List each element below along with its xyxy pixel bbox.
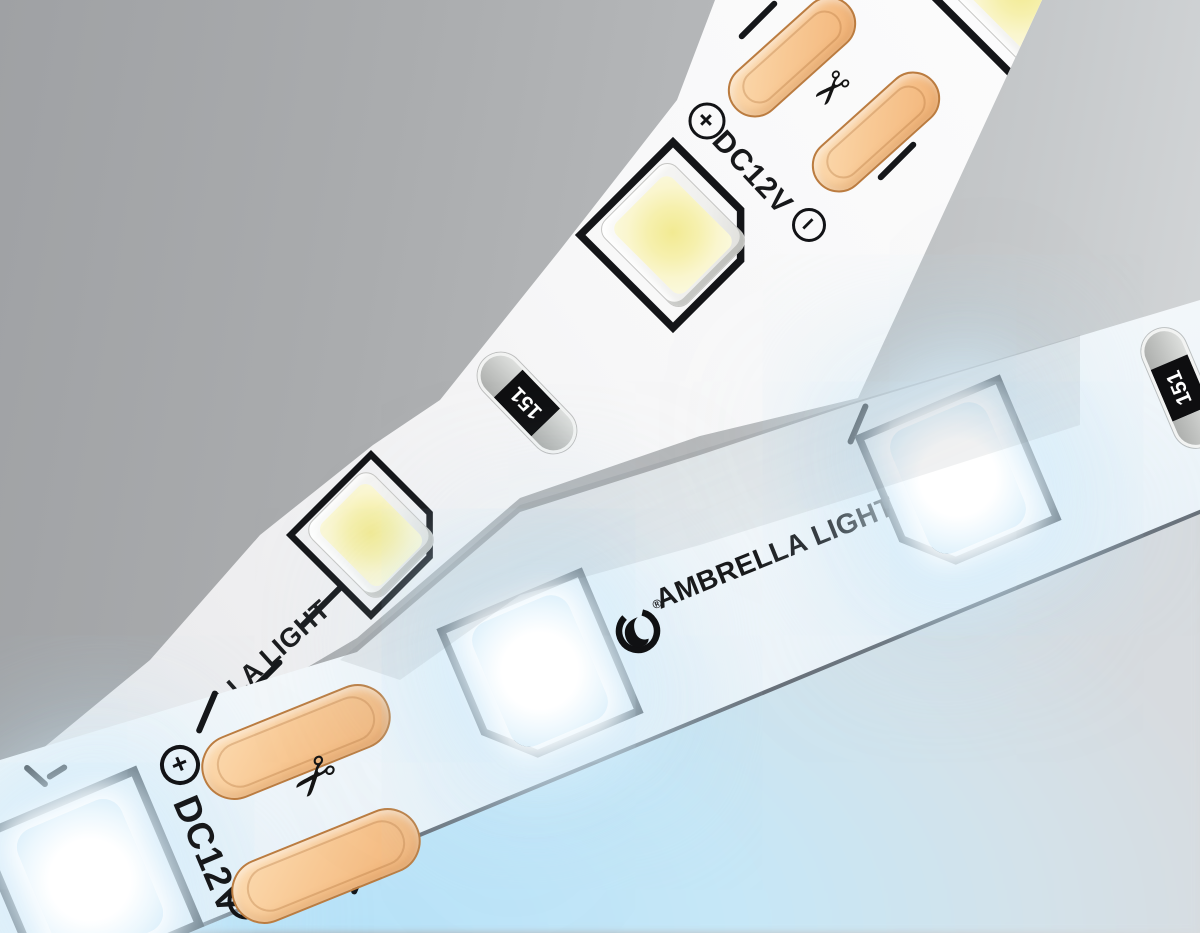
- led-strip-front-cool: + DC12V − ✂ ® AMBRELLA LIGHT: [0, 0, 1200, 933]
- product-photo: AMBRELLA LIGHT 151: [0, 0, 1200, 933]
- resistor-value: 151: [1162, 367, 1198, 409]
- plus-glyph: +: [166, 748, 192, 780]
